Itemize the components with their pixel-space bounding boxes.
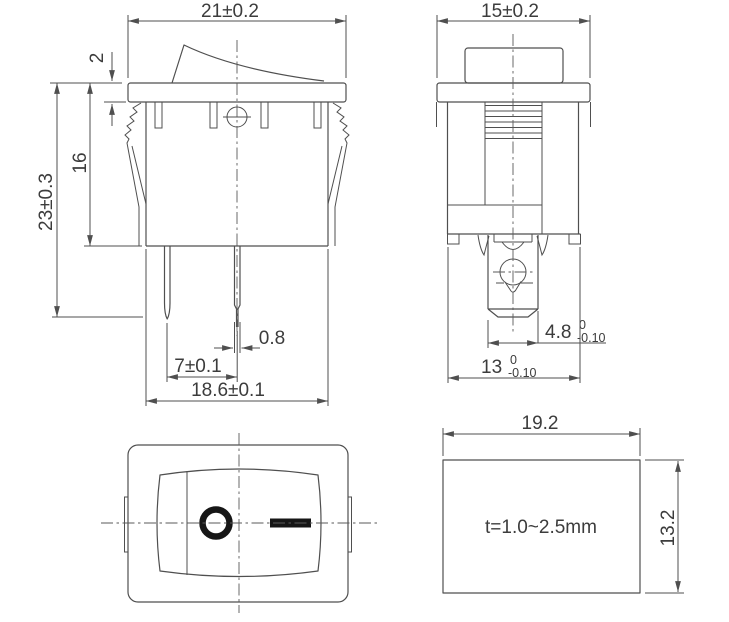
dim-label-terminal-tol-lower: -0.10 [577,331,606,345]
dim-label-overall-height: 23±0.3 [36,173,57,231]
dim-label-flange-thickness: 2 [87,53,108,64]
dim-cutout-height: 13.2 [645,460,684,593]
dim-label-snapin-tol-upper: 0 [510,353,517,367]
face-view [101,433,377,613]
side-rocker [465,48,563,83]
dim-label-pin-thickness: 0.8 [259,328,285,349]
dim-side-top-width: 15±0.2 [437,1,590,78]
dim-label-body-height: 16 [70,152,91,173]
technical-drawing: 21±0.2 2 16 23±0.3 0.8 7±0.1 18.6±0.1 [0,0,729,622]
front-mounting-clip-right [328,103,349,246]
dim-label-front-body-width: 18.6±0.1 [191,380,265,401]
dim-label-terminal-width: 4.8 [545,322,571,343]
dim-label-front-top-width: 21±0.2 [201,1,259,22]
dim-label-snapin-tol-lower: -0.10 [508,366,537,380]
front-rocker-profile [172,45,324,83]
dim-label-cutout-height: 13.2 [658,510,679,547]
dim-front-pin-thickness: 0.8 [214,322,285,353]
front-pin-left [165,246,171,319]
drawing-svg: 21±0.2 2 16 23±0.3 0.8 7±0.1 18.6±0.1 [0,0,729,622]
panel-thickness-note: t=1.0~2.5mm [485,517,597,538]
dim-label-side-top-width: 15±0.2 [481,1,539,22]
side-spring-ribs [485,106,542,139]
dim-front-pin-pitch: 7±0.1 [167,323,237,382]
panel-cutout-view: t=1.0~2.5mm 19.2 13.2 [443,413,684,593]
front-pegs [155,102,321,128]
face-side-tabs [125,497,352,552]
dim-cutout-width: 19.2 [443,413,640,456]
side-bezel [437,83,590,102]
dim-label-cutout-width: 19.2 [522,413,559,434]
dim-side-snapin-width: 13 0 -0.10 [448,247,580,383]
side-view [437,34,591,333]
dim-label-pin-pitch: 7±0.1 [174,356,221,377]
front-view [125,40,349,336]
dim-label-snapin-width: 13 [481,357,502,378]
front-mounting-clip-left [125,103,146,246]
dim-front-flange-thickness: 2 [50,52,126,126]
